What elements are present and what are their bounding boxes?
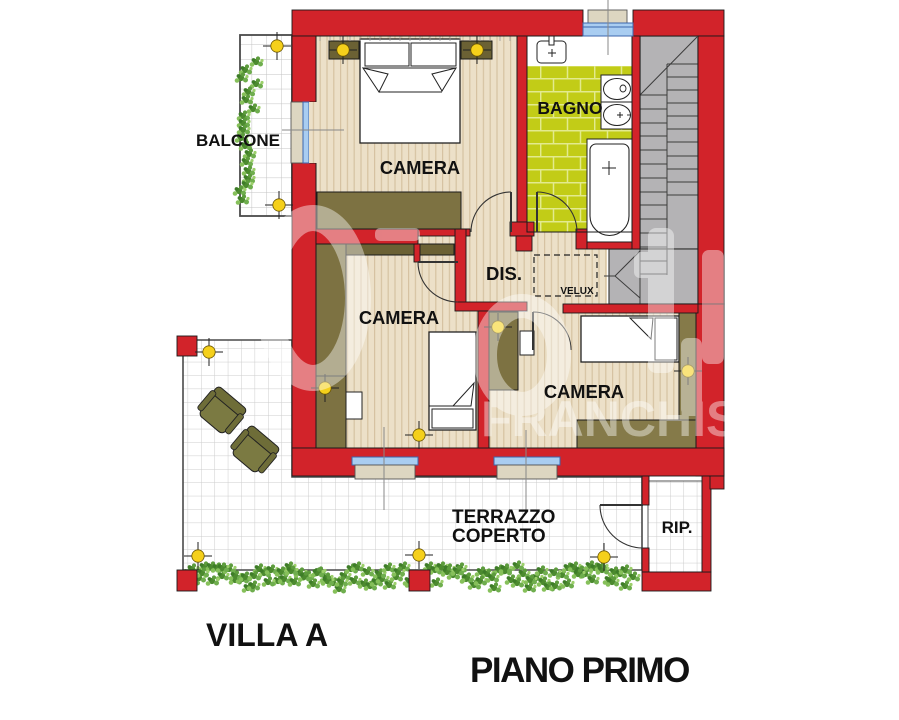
svg-text:BALCONE: BALCONE (196, 131, 280, 150)
svg-text:COPERTO: COPERTO (452, 526, 546, 547)
svg-text:PIANO PRIMO: PIANO PRIMO (470, 651, 689, 690)
svg-text:BAGNO: BAGNO (537, 98, 602, 118)
svg-text:VELUX: VELUX (560, 286, 594, 297)
svg-text:CAMERA: CAMERA (380, 157, 460, 178)
svg-text:TERRAZZO: TERRAZZO (452, 507, 555, 528)
svg-text:RIP.: RIP. (662, 518, 693, 537)
svg-text:DIS.: DIS. (486, 263, 522, 284)
svg-text:CAMERA: CAMERA (359, 307, 439, 328)
svg-text:VILLA A: VILLA A (206, 617, 328, 653)
svg-text:FRANCHISING: FRANCHISING (481, 391, 828, 447)
svg-text:CAMERA: CAMERA (544, 381, 624, 402)
